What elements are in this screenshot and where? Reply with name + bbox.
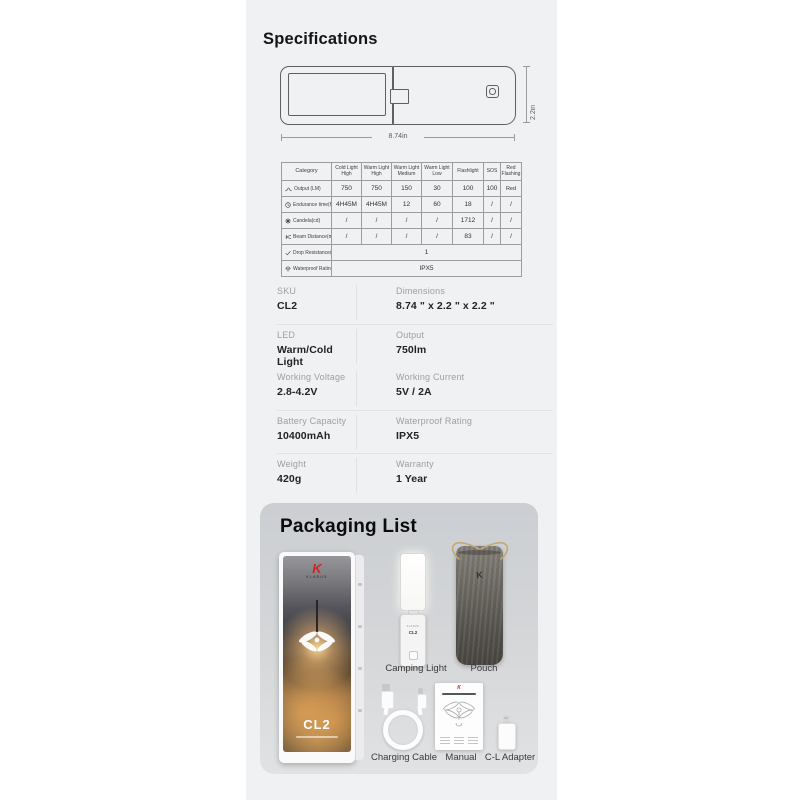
pouch-image: K <box>456 546 503 665</box>
umbrella-icon <box>285 266 291 272</box>
table-row: Waterproof Rating IPX5 <box>282 261 522 277</box>
col-flashlight: Flashlight <box>453 163 484 181</box>
light-panel <box>400 553 426 611</box>
divider <box>356 371 357 406</box>
detail-value: Warm/Cold Light <box>277 344 356 368</box>
diagram-usb-tab <box>390 89 409 104</box>
camping-light-image: KLARUS CL2 <box>400 553 426 666</box>
pouch-logo: K <box>456 568 504 583</box>
box-model-text: CL2 <box>283 717 351 732</box>
divider <box>356 415 357 450</box>
detail-label: SKU <box>277 286 356 296</box>
col-warm-light-high: Warm Light High <box>362 163 392 181</box>
manual-logo: K <box>435 686 483 691</box>
divider <box>356 285 357 320</box>
row-label: Waterproof Rating <box>293 266 332 272</box>
row-label: Output (LM) <box>294 186 321 192</box>
dimension-tick <box>514 134 515 141</box>
divider <box>356 458 357 493</box>
detail-label: LED <box>277 330 356 340</box>
device-brand-text: KLARUS <box>401 625 425 628</box>
length-dimension-label: 8.74in <box>372 133 424 140</box>
lantern-fan-icon <box>295 628 339 656</box>
detail-label: Working Current <box>396 372 553 382</box>
height-dimension-label: 2.2in <box>530 70 537 120</box>
detail-row-sku-dimensions: SKU CL2 Dimensions 8.74 " x 2.2 " x 2.2 … <box>277 281 553 324</box>
spec-table-header-row: Category Cold Light High Warm Light High… <box>282 163 522 181</box>
adapter-plug <box>503 715 510 723</box>
table-row: Output (LM) 750 750 150 30 100 100 Red <box>282 181 522 197</box>
detail-label: Waterproof Rating <box>396 416 553 426</box>
col-warm-light-medium: Warm Light Medium <box>392 163 422 181</box>
manual-image: K <box>435 683 483 750</box>
detail-row-led-output: LED Warm/Cold Light Output 750lm <box>277 324 553 367</box>
box-side-panel <box>355 555 364 760</box>
cl-adapter-image <box>498 715 514 750</box>
detail-value: 5V / 2A <box>396 386 553 398</box>
specifications-title: Specifications <box>263 30 378 49</box>
beam-icon <box>285 234 291 240</box>
spec-details-list: SKU CL2 Dimensions 8.74 " x 2.2 " x 2.2 … <box>277 281 553 496</box>
clock-icon <box>285 202 291 208</box>
spec-table: Category Cold Light High Warm Light High… <box>281 162 522 277</box>
diagram-power-button <box>486 85 499 98</box>
device-body: KLARUS CL2 <box>400 614 426 667</box>
col-red-flashing: Red Flashing <box>501 163 522 181</box>
col-sos: SOS <box>484 163 501 181</box>
detail-label: Battery Capacity <box>277 416 356 426</box>
klarus-k-logo: K <box>283 562 351 575</box>
packaging-list-card: Packaging List K KLARUS <box>260 503 538 774</box>
box-photo: K KLARUS CL2 <box>283 556 351 752</box>
product-page-column: Specifications 2.2in 8.74in Category Col… <box>246 0 557 800</box>
retail-box-image: K KLARUS CL2 <box>279 552 363 763</box>
item-label-cl-adapter: C-L Adapter <box>480 752 538 763</box>
box-tagline-bar <box>296 736 338 738</box>
pouch-cinch <box>458 550 501 555</box>
item-label-camping-light: Camping Light <box>366 663 466 674</box>
packaging-list-title: Packaging List <box>280 516 417 538</box>
detail-row-voltage-current: Working Voltage 2.8-4.2V Working Current… <box>277 367 553 410</box>
brand-name: KLARUS <box>283 575 351 579</box>
brand-logo: K KLARUS <box>283 562 351 579</box>
row-label: Endurance time(H) <box>293 202 332 208</box>
dimension-tick <box>523 66 530 67</box>
output-curve-icon <box>285 186 292 192</box>
detail-value: CL2 <box>277 300 356 312</box>
sun-icon <box>285 218 291 224</box>
dimension-tick <box>523 122 530 123</box>
row-label: Beam Distance(m) <box>293 234 332 240</box>
detail-label: Warranty <box>396 459 553 469</box>
dimension-tick <box>281 134 282 141</box>
row-label: Drop Resistance(m) <box>293 250 332 256</box>
detail-label: Weight <box>277 459 356 469</box>
adapter-body <box>498 723 516 750</box>
product-dimension-diagram: 2.2in 8.74in <box>280 64 532 144</box>
table-row: Drop Resistance(m) 1 <box>282 245 522 261</box>
check-icon <box>285 250 291 256</box>
col-cold-light-high: Cold Light High <box>332 163 362 181</box>
detail-row-weight-warranty: Weight 420g Warranty 1 Year <box>277 453 553 496</box>
cable-cord <box>383 707 388 715</box>
charging-cable-image <box>378 684 428 750</box>
col-warm-light-low: Warm Light Low <box>422 163 453 181</box>
detail-value: 2.8-4.2V <box>277 386 356 398</box>
table-row: Endurance time(H) 4H45M 4H45M 12 60 18 /… <box>282 197 522 213</box>
row-label: Candela(cd) <box>293 218 320 224</box>
table-row: Candela(cd) / / / / 1712 / / <box>282 213 522 229</box>
detail-value: 750lm <box>396 344 553 356</box>
height-dimension-line <box>526 66 527 123</box>
detail-label: Working Voltage <box>277 372 356 382</box>
detail-value: 420g <box>277 473 356 485</box>
detail-value: 8.74 " x 2.2 " x 2.2 " <box>396 300 553 312</box>
diagram-panel-screen <box>288 73 386 116</box>
device-button <box>409 651 418 660</box>
table-row: Beam Distance(m) / / / / 83 / / <box>282 229 522 245</box>
box-front: K KLARUS CL2 <box>279 552 355 763</box>
item-label-pouch: Pouch <box>454 663 514 674</box>
cable-loop <box>383 710 423 750</box>
col-category: Category <box>282 163 332 181</box>
detail-label: Dimensions <box>396 286 553 296</box>
detail-value: 10400mAh <box>277 430 356 442</box>
detail-value: IPX5 <box>396 430 553 442</box>
divider <box>356 329 357 364</box>
detail-label: Output <box>396 330 553 340</box>
detail-value: 1 Year <box>396 473 553 485</box>
detail-row-battery-waterproof: Battery Capacity 10400mAh Waterproof Rat… <box>277 410 553 453</box>
manual-diagram <box>439 698 479 728</box>
manual-title-bar <box>442 693 476 695</box>
device-model-text: CL2 <box>401 630 425 635</box>
usb-a-connector <box>382 684 390 691</box>
